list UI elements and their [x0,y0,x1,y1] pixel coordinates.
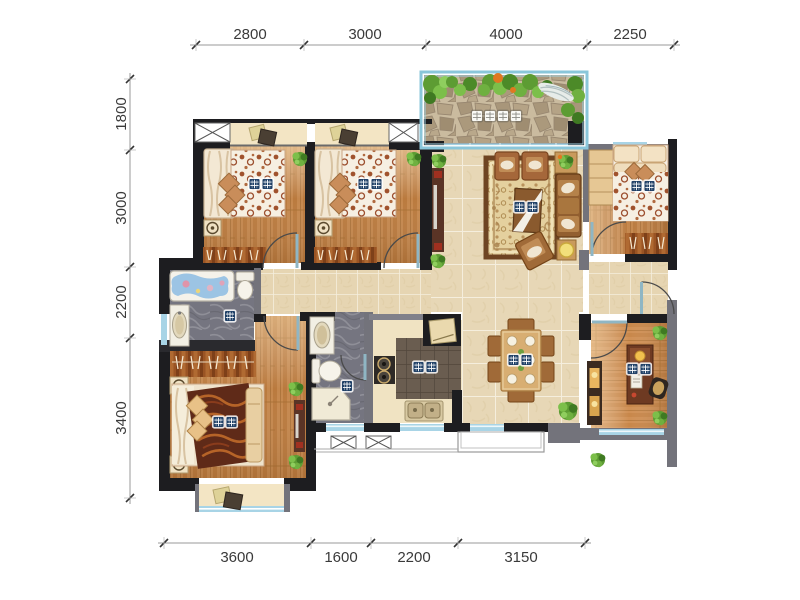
svg-text:4000: 4000 [489,26,522,43]
svg-text:1600: 1600 [324,549,357,566]
svg-text:3400: 3400 [113,401,130,434]
svg-text:2800: 2800 [233,26,266,43]
svg-text:3600: 3600 [220,549,253,566]
svg-text:3000: 3000 [113,191,130,224]
svg-text:2200: 2200 [113,285,130,318]
svg-text:3000: 3000 [348,26,381,43]
svg-text:1800: 1800 [113,97,130,130]
svg-text:2250: 2250 [613,26,646,43]
svg-text:2200: 2200 [397,549,430,566]
svg-text:3150: 3150 [504,549,537,566]
